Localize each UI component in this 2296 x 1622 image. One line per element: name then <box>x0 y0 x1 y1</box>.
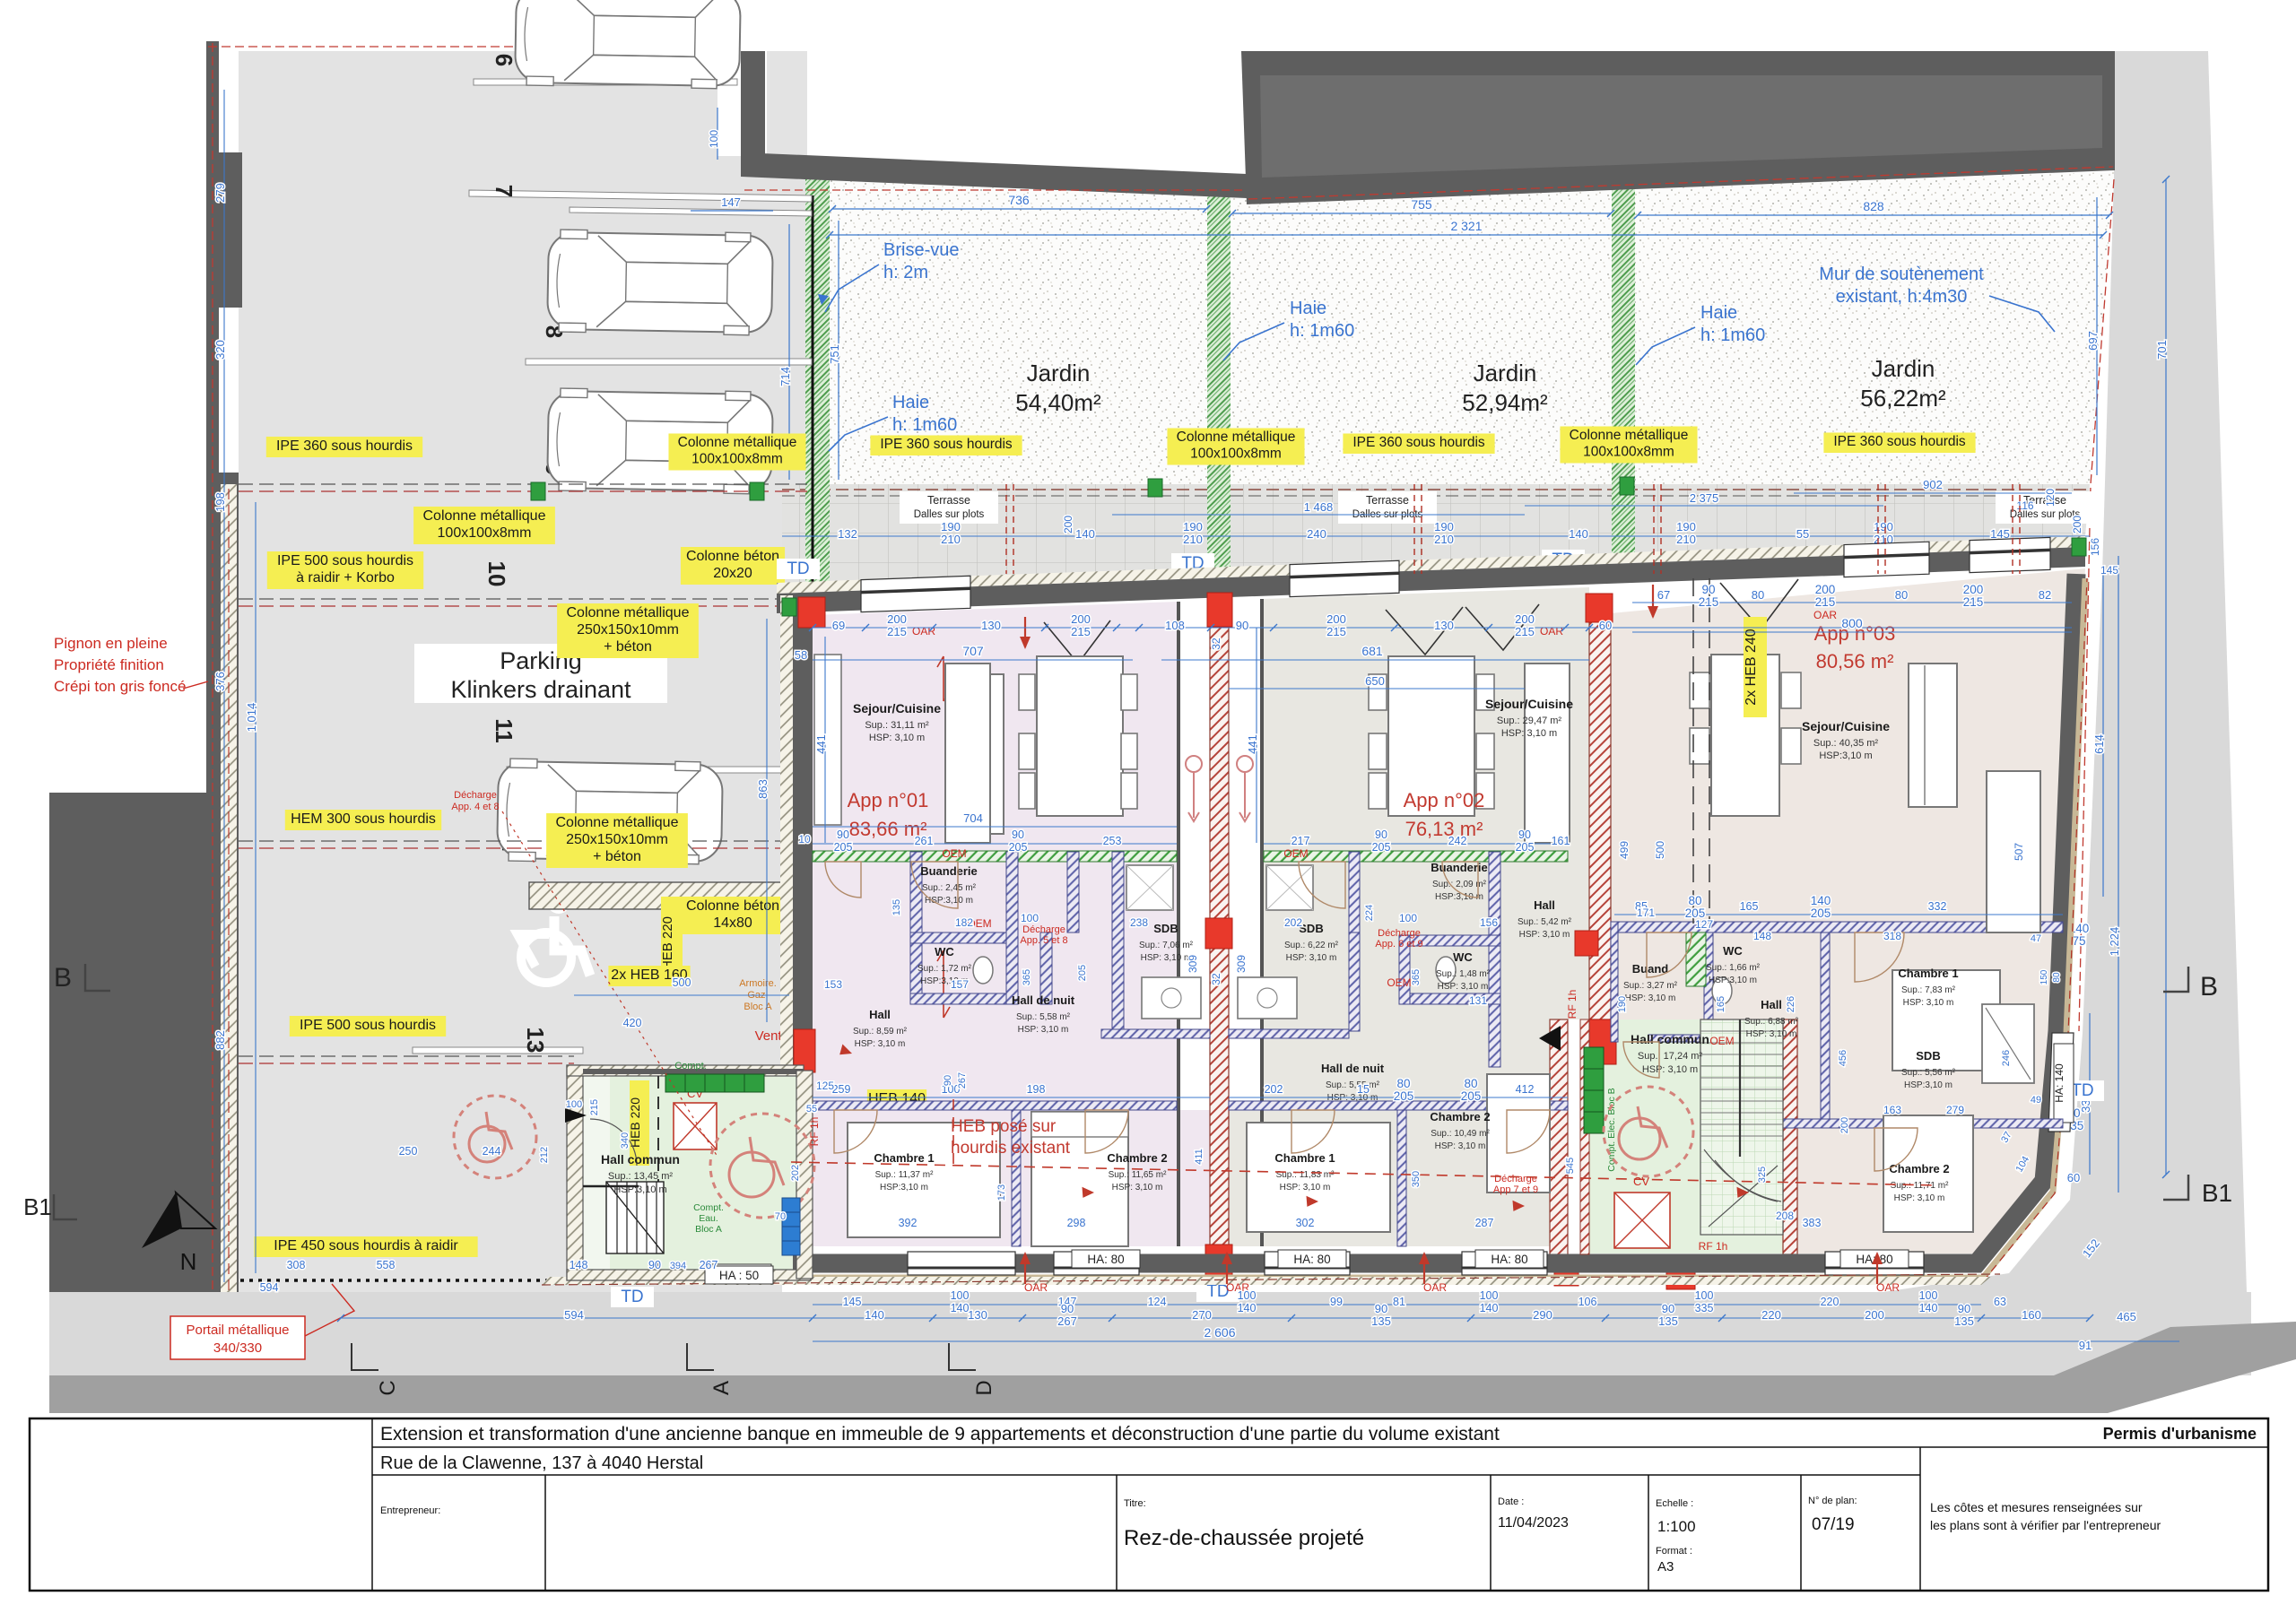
svg-text:210: 210 <box>941 533 961 546</box>
svg-text:76,13 m²: 76,13 m² <box>1405 818 1483 840</box>
svg-text:Sup.: 5,56 m²: Sup.: 5,56 m² <box>1901 1068 1956 1078</box>
svg-text:App n°02: App n°02 <box>1404 789 1485 811</box>
svg-text:190: 190 <box>1617 996 1628 1012</box>
svg-text:HSP:3,10 m: HSP:3,10 m <box>1819 750 1872 761</box>
svg-text:148: 148 <box>570 1259 588 1271</box>
svg-text:224: 224 <box>1364 905 1375 921</box>
svg-text:Compt.: Compt. <box>674 1061 706 1071</box>
svg-text:365: 365 <box>1022 969 1032 985</box>
svg-text:220: 220 <box>1821 1296 1839 1308</box>
svg-text:TD: TD <box>621 1288 643 1306</box>
svg-text:376: 376 <box>213 672 227 691</box>
svg-text:+ béton: + béton <box>593 849 641 864</box>
svg-text:Sup.: 6,88 m²: Sup.: 6,88 m² <box>1744 1017 1799 1027</box>
svg-text:HSP: 3,10 m: HSP: 3,10 m <box>1903 998 1954 1008</box>
svg-text:165: 165 <box>1716 996 1726 1012</box>
svg-text:205: 205 <box>1461 1089 1482 1103</box>
svg-text:259: 259 <box>832 1083 851 1096</box>
svg-text:80: 80 <box>1396 1077 1410 1090</box>
svg-text:Bloc A: Bloc A <box>695 1224 722 1235</box>
svg-text:308: 308 <box>287 1259 306 1271</box>
svg-text:HSP: 3,10 m: HSP: 3,10 m <box>1280 1183 1331 1193</box>
svg-text:200: 200 <box>887 612 907 626</box>
svg-text:157: 157 <box>951 978 969 991</box>
svg-text:82: 82 <box>2039 588 2051 602</box>
svg-text:67: 67 <box>1657 588 1670 602</box>
svg-text:365: 365 <box>1411 969 1422 985</box>
svg-text:100: 100 <box>708 130 720 148</box>
svg-text:SDB: SDB <box>1916 1049 1940 1063</box>
svg-text:Sup.: 5,42 m²: Sup.: 5,42 m² <box>1518 917 1572 927</box>
svg-text:Hall commun: Hall commun <box>1631 1032 1709 1046</box>
svg-text:Décharge: Décharge <box>1378 928 1421 939</box>
svg-text:250x150x10mm: 250x150x10mm <box>566 832 668 847</box>
svg-text:HSP: 3,10 m: HSP: 3,10 m <box>1519 930 1570 940</box>
svg-text:145: 145 <box>2100 564 2118 577</box>
svg-text:C: C <box>376 1380 400 1395</box>
svg-text:200: 200 <box>1963 583 1984 596</box>
svg-text:267: 267 <box>1057 1314 1077 1328</box>
svg-text:412: 412 <box>1516 1083 1535 1096</box>
svg-text:392: 392 <box>899 1217 918 1229</box>
svg-text:32: 32 <box>1210 973 1222 985</box>
svg-text:WC: WC <box>1453 950 1473 964</box>
svg-text:1 014: 1 014 <box>245 703 258 733</box>
svg-text:90: 90 <box>943 1075 953 1086</box>
svg-text:Sup.: 29,47 m²: Sup.: 29,47 m² <box>1497 716 1561 726</box>
svg-text:318: 318 <box>1883 930 1901 942</box>
svg-text:200: 200 <box>1865 1308 1884 1322</box>
svg-text:140: 140 <box>1075 527 1095 541</box>
svg-text:Pignon en pleine: Pignon en pleine <box>54 635 168 652</box>
svg-text:11/04/2023: 11/04/2023 <box>1498 1515 1569 1531</box>
svg-text:140: 140 <box>1480 1302 1499 1314</box>
svg-text:WC: WC <box>1723 944 1743 958</box>
svg-text:212: 212 <box>539 1147 550 1163</box>
svg-text:80: 80 <box>1464 1077 1477 1090</box>
svg-text:B: B <box>54 963 72 993</box>
svg-text:100: 100 <box>566 1099 582 1110</box>
svg-text:Propriété finition: Propriété finition <box>54 656 164 673</box>
svg-text:Dalles sur plots: Dalles sur plots <box>914 509 985 520</box>
svg-text:173: 173 <box>996 1184 1007 1201</box>
svg-text:394: 394 <box>670 1261 686 1271</box>
svg-text:100: 100 <box>951 1289 970 1302</box>
svg-text:Sup.: 31,11 m²: Sup.: 31,11 m² <box>865 720 929 731</box>
svg-text:106: 106 <box>1578 1296 1597 1308</box>
svg-text:863: 863 <box>756 779 770 799</box>
svg-text:340/330: 340/330 <box>213 1340 262 1356</box>
svg-text:Portail métallique: Portail métallique <box>186 1323 289 1338</box>
svg-text:75: 75 <box>2072 934 2085 948</box>
svg-text:171: 171 <box>1637 906 1655 919</box>
svg-text:Format :: Format : <box>1656 1546 1692 1557</box>
svg-text:200: 200 <box>1515 612 1535 626</box>
svg-text:HSP: 3,10 m: HSP: 3,10 m <box>1642 1064 1698 1075</box>
svg-text:100: 100 <box>1695 1289 1714 1302</box>
svg-text:701: 701 <box>2155 340 2169 360</box>
svg-text:335: 335 <box>1695 1302 1714 1314</box>
svg-text:499: 499 <box>1618 841 1631 859</box>
svg-text:OAR: OAR <box>1423 1281 1447 1294</box>
svg-text:Hall: Hall <box>869 1008 891 1021</box>
svg-text:Hall: Hall <box>1534 898 1555 912</box>
svg-text:202: 202 <box>1265 1083 1283 1096</box>
svg-text:B1: B1 <box>2202 1179 2232 1207</box>
svg-text:332: 332 <box>1928 900 1947 913</box>
svg-text:99: 99 <box>1330 1296 1343 1308</box>
svg-text:Haie: Haie <box>1290 299 1326 318</box>
svg-text:902: 902 <box>1923 478 1943 491</box>
svg-text:205: 205 <box>834 841 853 854</box>
svg-text:7: 7 <box>491 185 517 197</box>
svg-text:1 224: 1 224 <box>2108 927 2121 957</box>
svg-text:140: 140 <box>1811 894 1831 907</box>
svg-text:287: 287 <box>1475 1217 1494 1229</box>
svg-text:130: 130 <box>1434 619 1454 632</box>
svg-text:TD: TD <box>2071 1081 2093 1100</box>
svg-text:54,40m²: 54,40m² <box>1015 389 1101 416</box>
svg-text:Crépi ton gris foncé: Crépi ton gris foncé <box>54 678 186 695</box>
svg-text:246: 246 <box>2001 1050 2012 1066</box>
svg-text:420: 420 <box>623 1017 642 1029</box>
svg-text:279: 279 <box>1946 1104 1964 1116</box>
svg-text:217: 217 <box>1291 835 1310 847</box>
svg-text:47: 47 <box>2031 933 2041 944</box>
svg-text:existant, h:4m30: existant, h:4m30 <box>1836 287 1968 307</box>
svg-text:Sup.: 8,59 m²: Sup.: 8,59 m² <box>853 1027 908 1037</box>
svg-text:Haie: Haie <box>1700 303 1737 323</box>
svg-text:250: 250 <box>399 1145 418 1158</box>
svg-text:261: 261 <box>915 835 934 847</box>
svg-text:2 375: 2 375 <box>1690 491 1719 505</box>
svg-text:150: 150 <box>2039 969 2049 984</box>
svg-text:Extension et transformation d': Extension et transformation d'une ancien… <box>380 1424 1500 1444</box>
svg-text:190: 190 <box>1676 520 1696 533</box>
svg-text:100: 100 <box>1021 912 1039 924</box>
svg-text:270: 270 <box>1192 1308 1212 1322</box>
svg-text:755: 755 <box>1411 197 1432 212</box>
svg-text:OAR: OAR <box>1876 1281 1900 1294</box>
svg-text:309: 309 <box>1187 955 1199 973</box>
svg-text:456: 456 <box>1838 1050 1848 1066</box>
svg-text:594: 594 <box>260 1281 279 1294</box>
svg-text:SDB: SDB <box>1299 922 1323 935</box>
svg-text:681: 681 <box>1361 644 1383 658</box>
svg-text:RF 1h: RF 1h <box>1566 990 1578 1019</box>
svg-text:90: 90 <box>1701 583 1715 596</box>
svg-text:279: 279 <box>213 183 227 203</box>
svg-text:Brise-vue: Brise-vue <box>883 240 959 260</box>
svg-text:11: 11 <box>491 718 517 743</box>
svg-text:Buand: Buand <box>1632 962 1669 976</box>
svg-text:80: 80 <box>1752 588 1764 602</box>
svg-text:HEM 300 sous hourdis: HEM 300 sous hourdis <box>291 811 436 827</box>
svg-text:200: 200 <box>2071 516 2083 533</box>
svg-text:App. 6 et 9: App. 6 et 9 <box>1375 939 1422 950</box>
svg-text:100x100x8mm: 100x100x8mm <box>1583 445 1674 460</box>
svg-text:507: 507 <box>2013 843 2025 861</box>
svg-text:IPE 360 sous hourdis: IPE 360 sous hourdis <box>1833 434 1966 449</box>
svg-text:Rue de la Clawenne, 137 à 4040: Rue de la Clawenne, 137 à 4040 Herstal <box>380 1453 703 1473</box>
svg-text:441: 441 <box>1246 734 1259 754</box>
svg-text:Compt. Elec. Bloc B: Compt. Elec. Bloc B <box>1606 1088 1617 1171</box>
svg-text:91: 91 <box>2079 1339 2092 1352</box>
svg-text:828: 828 <box>1863 199 1884 213</box>
svg-text:Colonne béton: Colonne béton <box>686 898 779 914</box>
svg-text:Titre:: Titre: <box>1124 1498 1146 1509</box>
svg-text:309: 309 <box>1235 955 1248 973</box>
svg-text:100x100x8mm: 100x100x8mm <box>438 525 532 541</box>
svg-text:147: 147 <box>721 195 741 209</box>
svg-text:205: 205 <box>1394 1089 1414 1103</box>
svg-text:2 321: 2 321 <box>1450 219 1482 233</box>
svg-text:441: 441 <box>814 734 828 754</box>
svg-text:HSP: 3,10 m: HSP: 3,10 m <box>1894 1193 1945 1203</box>
svg-text:Terrasse: Terrasse <box>927 494 970 507</box>
svg-text:594: 594 <box>564 1308 584 1322</box>
svg-text:HA: 140: HA: 140 <box>2053 1063 2066 1103</box>
svg-text:325: 325 <box>1757 1167 1768 1183</box>
svg-text:A3: A3 <box>1657 1559 1674 1574</box>
svg-text:290: 290 <box>1533 1308 1552 1322</box>
svg-text:A: A <box>709 1381 734 1395</box>
svg-text:100: 100 <box>1399 912 1417 924</box>
svg-text:Sup.: 13,45 m²: Sup.: 13,45 m² <box>608 1171 673 1182</box>
svg-text:Chambre 1: Chambre 1 <box>1274 1151 1335 1165</box>
svg-text:HA : 50: HA : 50 <box>719 1269 759 1282</box>
svg-text:350: 350 <box>1411 1171 1422 1187</box>
svg-text:135: 135 <box>1954 1314 1974 1328</box>
svg-text:IPE 500 sous hourdis: IPE 500 sous hourdis <box>300 1018 436 1033</box>
svg-text:240: 240 <box>1307 527 1326 541</box>
svg-text:Chambre 1: Chambre 1 <box>1898 967 1958 980</box>
svg-text:226: 226 <box>1786 996 1796 1012</box>
svg-text:HSP: 3,10 m: HSP: 3,10 m <box>1501 728 1557 739</box>
svg-text:App n°01: App n°01 <box>848 789 929 811</box>
svg-text:IPE 450 sous hourdis à raidir: IPE 450 sous hourdis à raidir <box>274 1238 458 1253</box>
svg-text:697: 697 <box>2086 331 2100 351</box>
svg-text:HSP: 3,10 m: HSP: 3,10 m <box>855 1039 906 1049</box>
svg-text:TD: TD <box>787 559 809 578</box>
svg-text:182: 182 <box>955 916 973 929</box>
svg-text:SDB: SDB <box>1153 922 1178 935</box>
svg-text:RF 1h: RF 1h <box>1699 1240 1728 1253</box>
svg-text:215: 215 <box>1963 595 1984 609</box>
svg-text:App. 4 et 8: App. 4 et 8 <box>451 802 499 812</box>
svg-text:52,94m²: 52,94m² <box>1462 389 1548 416</box>
svg-text:132: 132 <box>838 527 857 541</box>
svg-text:190: 190 <box>1183 520 1203 533</box>
svg-text:HA: 80: HA: 80 <box>1087 1253 1124 1266</box>
svg-text:15: 15 <box>1357 1083 1370 1096</box>
svg-text:215: 215 <box>1815 595 1836 609</box>
svg-text:N: N <box>180 1248 197 1275</box>
svg-text:90: 90 <box>1375 828 1387 841</box>
svg-text:Colonne métallique: Colonne métallique <box>1570 428 1689 443</box>
svg-text:80: 80 <box>2052 972 2062 983</box>
svg-text:320: 320 <box>213 340 227 360</box>
svg-text:10: 10 <box>483 561 510 587</box>
svg-text:Colonne métallique: Colonne métallique <box>678 435 797 450</box>
svg-text:707: 707 <box>962 644 984 658</box>
svg-text:OAR: OAR <box>1540 625 1563 638</box>
svg-text:80: 80 <box>1688 894 1701 907</box>
svg-text:WC: WC <box>935 945 954 958</box>
svg-text:Sup.: 17,24 m²: Sup.: 17,24 m² <box>1638 1051 1702 1062</box>
svg-text:HA: 80: HA: 80 <box>1491 1253 1527 1266</box>
svg-text:60: 60 <box>1599 619 1612 632</box>
svg-text:Echelle :: Echelle : <box>1656 1498 1693 1509</box>
svg-text:IPE 360 sous hourdis: IPE 360 sous hourdis <box>1352 435 1485 450</box>
svg-text:RF 1h: RF 1h <box>808 1117 821 1147</box>
svg-text:215: 215 <box>1699 595 1719 609</box>
svg-text:Mur de soutènement: Mur de soutènement <box>1819 265 1984 284</box>
svg-text:215: 215 <box>887 625 907 638</box>
svg-text:140: 140 <box>1569 527 1588 541</box>
svg-text:Sejour/Cuisine: Sejour/Cuisine <box>1802 719 1890 733</box>
svg-text:Colonne métallique: Colonne métallique <box>567 605 690 620</box>
svg-text:63: 63 <box>1994 1296 2006 1308</box>
svg-text:32: 32 <box>1210 638 1222 650</box>
svg-text:156: 156 <box>2089 538 2101 556</box>
svg-text:81: 81 <box>1393 1296 1405 1308</box>
svg-text:205: 205 <box>1811 906 1831 920</box>
svg-text:135: 135 <box>891 899 902 915</box>
svg-text:HSP: 3,10 m: HSP: 3,10 m <box>1286 953 1337 963</box>
svg-text:HSP: 3,10 m: HSP: 3,10 m <box>1625 993 1676 1003</box>
svg-text:215: 215 <box>1326 625 1346 638</box>
svg-text:+ béton: + béton <box>604 639 652 655</box>
svg-text:202: 202 <box>790 1165 801 1181</box>
svg-text:465: 465 <box>2117 1310 2136 1323</box>
svg-text:135: 135 <box>1371 1314 1391 1328</box>
svg-text:131: 131 <box>1469 994 1487 1007</box>
svg-text:HSP: 3,10 m: HSP: 3,10 m <box>869 733 925 743</box>
svg-text:Colonne béton: Colonne béton <box>686 549 779 564</box>
svg-text:Sup.: 11,37 m²: Sup.: 11,37 m² <box>875 1170 935 1180</box>
svg-text:Buanderie: Buanderie <box>1431 861 1488 874</box>
svg-text:190: 190 <box>1434 520 1454 533</box>
svg-text:205: 205 <box>1009 841 1028 854</box>
svg-text:2x HEB 240: 2x HEB 240 <box>1744 629 1759 705</box>
svg-text:215: 215 <box>589 1099 600 1115</box>
svg-text:HSP: 3,10 m: HSP: 3,10 m <box>1438 982 1489 992</box>
svg-text:250x150x10mm: 250x150x10mm <box>577 622 679 638</box>
svg-text:90: 90 <box>1375 1302 1387 1315</box>
svg-text:Entrepreneur:: Entrepreneur: <box>380 1505 440 1516</box>
svg-text:Sup.: 6,22 m²: Sup.: 6,22 m² <box>1284 941 1339 950</box>
svg-text:140: 140 <box>1919 1302 1938 1314</box>
svg-text:145: 145 <box>843 1296 862 1308</box>
svg-text:1 468: 1 468 <box>1304 500 1334 514</box>
svg-text:558: 558 <box>377 1259 396 1271</box>
svg-text:200: 200 <box>1815 583 1836 596</box>
svg-text:OEM: OEM <box>1387 976 1411 989</box>
svg-text:2 606: 2 606 <box>1204 1325 1235 1340</box>
svg-text:Jardin: Jardin <box>1027 360 1091 386</box>
svg-text:Haie: Haie <box>892 393 929 412</box>
svg-text:Les côtes et mesures renseigné: Les côtes et mesures renseignées sur <box>1930 1500 2143 1514</box>
svg-text:69: 69 <box>832 619 845 632</box>
svg-text:Hall de nuit: Hall de nuit <box>1012 993 1075 1007</box>
svg-text:Armoire.: Armoire. <box>739 978 777 989</box>
svg-text:205: 205 <box>1372 841 1391 854</box>
svg-text:90: 90 <box>1061 1302 1074 1315</box>
svg-text:6: 6 <box>491 54 517 66</box>
svg-text:90: 90 <box>1012 828 1024 841</box>
svg-text:153: 153 <box>824 978 842 991</box>
svg-text:58: 58 <box>795 648 807 662</box>
svg-text:OAR: OAR <box>1813 609 1837 621</box>
svg-text:714: 714 <box>778 367 792 386</box>
svg-text:200: 200 <box>1326 612 1346 626</box>
svg-text:à raidir + Korbo: à raidir + Korbo <box>296 570 395 585</box>
svg-text:614: 614 <box>2092 734 2106 754</box>
svg-text:Sup.: 1,66 m²: Sup.: 1,66 m² <box>1706 963 1761 973</box>
svg-text:B1: B1 <box>23 1193 52 1220</box>
svg-text:HSP: 3,10 m: HSP: 3,10 m <box>1435 1141 1486 1151</box>
svg-text:198: 198 <box>213 492 227 512</box>
svg-text:hourdis existant: hourdis existant <box>951 1139 1071 1158</box>
svg-text:Compt.: Compt. <box>693 1202 724 1213</box>
svg-text:IPE 360 sous hourdis: IPE 360 sous hourdis <box>276 438 413 454</box>
svg-text:198: 198 <box>1027 1083 1046 1096</box>
svg-text:HSP:3,10 m: HSP:3,10 m <box>1904 1080 1952 1090</box>
svg-text:Sup.: 11,71 m²: Sup.: 11,71 m² <box>1891 1181 1950 1191</box>
svg-text:Sup.: 5,55 m²: Sup.: 5,55 m² <box>1326 1080 1380 1090</box>
svg-text:14x80: 14x80 <box>713 915 752 931</box>
svg-text:704: 704 <box>963 811 983 825</box>
svg-text:140: 140 <box>865 1308 884 1322</box>
svg-text:OEM: OEM <box>942 847 966 860</box>
svg-text:Hall commun: Hall commun <box>601 1152 680 1167</box>
svg-text:Décharge: Décharge <box>1494 1174 1537 1184</box>
svg-text:215: 215 <box>1071 625 1091 638</box>
svg-text:Sup.: 7,83 m²: Sup.: 7,83 m² <box>1901 985 1956 995</box>
svg-text:N° de plan:: N° de plan: <box>1808 1496 1857 1506</box>
svg-text:411: 411 <box>1194 1149 1205 1165</box>
svg-text:1:100: 1:100 <box>1657 1518 1696 1535</box>
svg-text:HSP:3,10 m: HSP:3,10 m <box>613 1184 666 1195</box>
svg-text:Terrasse: Terrasse <box>1366 494 1409 507</box>
svg-text:OAR: OAR <box>912 625 935 638</box>
svg-text:220: 220 <box>1761 1308 1781 1322</box>
svg-text:800: 800 <box>1841 616 1863 630</box>
svg-text:215: 215 <box>1515 625 1535 638</box>
svg-text:07/19: 07/19 <box>1812 1515 1855 1534</box>
svg-text:200: 200 <box>1839 1117 1850 1133</box>
svg-text:545: 545 <box>1565 1158 1576 1174</box>
svg-text:736: 736 <box>1008 193 1030 207</box>
svg-text:125: 125 <box>816 1080 834 1092</box>
svg-text:Bloc A: Bloc A <box>744 1002 772 1012</box>
svg-text:140: 140 <box>951 1302 970 1314</box>
svg-text:Chambre 1: Chambre 1 <box>874 1151 934 1165</box>
svg-text:242: 242 <box>1448 835 1467 847</box>
svg-text:Sup.: 7,06 m²: Sup.: 7,06 m² <box>1139 941 1194 950</box>
svg-text:HA: 80: HA: 80 <box>1293 1253 1330 1266</box>
svg-text:Sup.: 40,35 m²: Sup.: 40,35 m² <box>1813 738 1878 749</box>
svg-text:Date :: Date : <box>1498 1496 1524 1507</box>
svg-text:130: 130 <box>968 1308 987 1322</box>
svg-text:10: 10 <box>798 833 811 846</box>
svg-text:Colonne métallique: Colonne métallique <box>556 815 679 830</box>
svg-text:56,22m²: 56,22m² <box>1860 385 1946 412</box>
svg-text:HSP: 3,10 m: HSP: 3,10 m <box>1112 1183 1163 1193</box>
svg-text:161: 161 <box>1552 835 1570 847</box>
svg-text:13: 13 <box>522 1028 549 1054</box>
